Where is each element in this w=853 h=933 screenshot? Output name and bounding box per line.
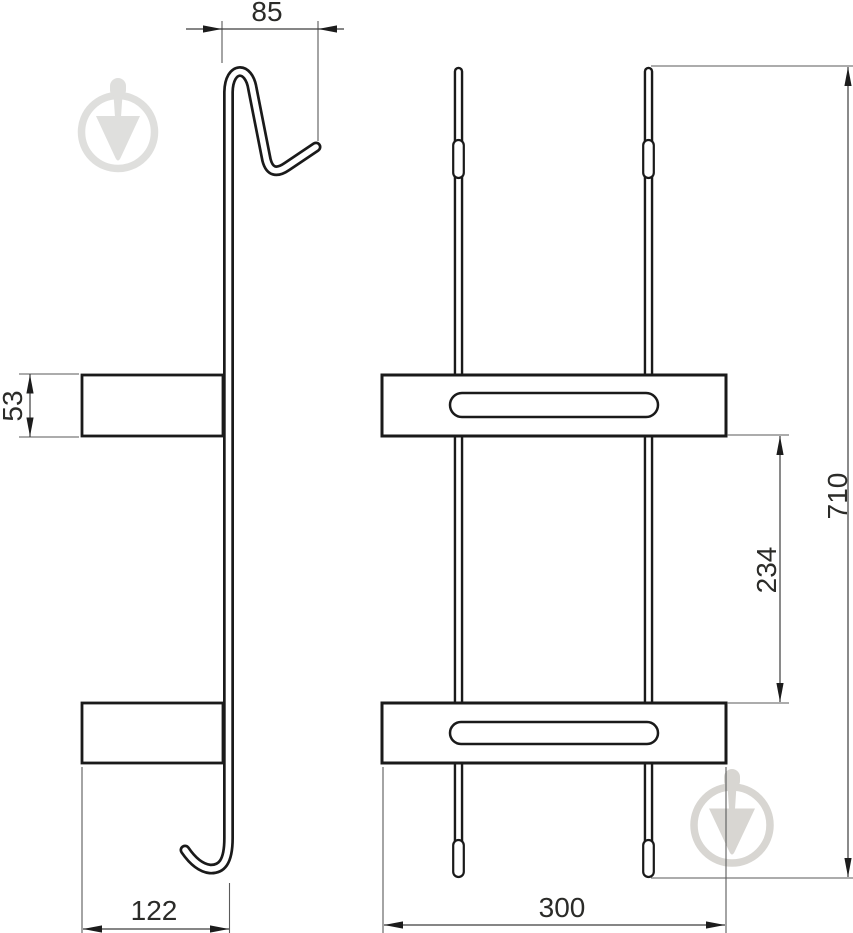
arrowhead	[210, 925, 229, 932]
side-view-lower-shelf	[82, 703, 223, 763]
front-view-upper-shelf-slot	[450, 393, 658, 417]
dimension-shelf-spacing: 234	[727, 435, 789, 703]
front-view-lower-shelf-slot	[450, 722, 658, 744]
arrowhead	[384, 921, 403, 928]
dimension-shelf-profile-height: 53	[0, 374, 79, 437]
trowel-logo-watermark-bottom-right	[694, 769, 770, 863]
front-view	[382, 72, 726, 878]
dimension-shelf-depth: 122	[82, 767, 230, 933]
dimension-shelf-width: 300	[383, 767, 726, 933]
arrowhead	[203, 25, 222, 32]
drawing-canvas: 85 53 122 234 710	[0, 0, 853, 933]
dim-label-overall-height: 710	[822, 473, 853, 520]
front-view-right-wire-bottom-bend	[643, 840, 654, 877]
front-view-left-wire-bottom-bend	[453, 840, 464, 877]
trowel-logo-watermark-top-left	[82, 78, 155, 169]
arrowhead	[776, 683, 783, 702]
dim-label-hook-width: 85	[251, 0, 282, 27]
watermark-trowel-blade	[709, 809, 755, 855]
watermark-trowel-blade	[96, 116, 140, 161]
arrowhead	[844, 858, 851, 877]
front-view-left-wire-top-bend	[453, 140, 464, 178]
dim-label-shelf-width: 300	[539, 892, 586, 923]
arrowhead	[776, 436, 783, 455]
dimension-hook-width: 85	[186, 0, 344, 141]
front-view-right-wire-top-bend	[643, 140, 654, 178]
watermark-trowel-stem	[114, 95, 123, 117]
dim-label-shelf-profile-height: 53	[0, 390, 28, 421]
technical-drawing: 85 53 122 234 710	[0, 0, 853, 933]
dim-label-shelf-depth: 122	[131, 895, 178, 926]
dim-label-shelf-spacing: 234	[751, 547, 782, 594]
arrowhead	[83, 925, 102, 932]
side-view-upper-shelf	[82, 375, 223, 436]
side-view	[82, 72, 316, 869]
watermark-trowel-stem	[728, 786, 737, 809]
arrowhead	[844, 67, 851, 86]
arrowhead	[318, 25, 337, 32]
arrowhead	[706, 921, 725, 928]
